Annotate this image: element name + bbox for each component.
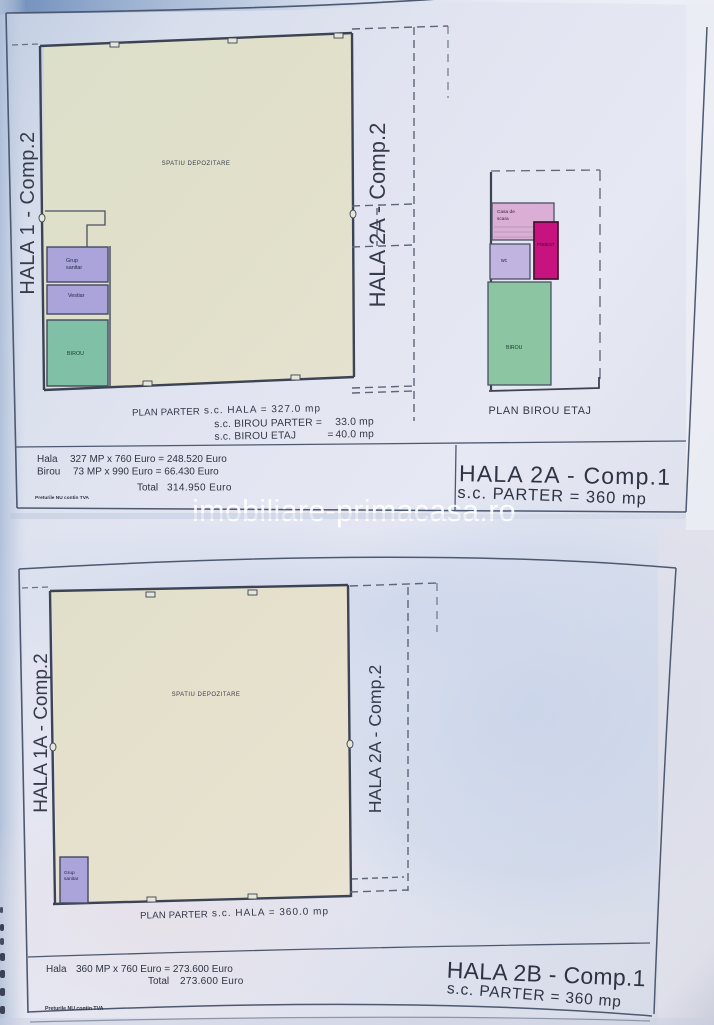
- svg-text:PLAN BIROU ETAJ: PLAN BIROU ETAJ: [489, 405, 592, 417]
- svg-text:Birou: Birou: [37, 467, 60, 478]
- svg-text:scara: scara: [497, 216, 509, 222]
- svg-text:40.0 mp: 40.0 mp: [335, 429, 374, 441]
- svg-text:Casa de: Casa de: [497, 209, 515, 215]
- svg-text:s.c. HALA = 360.0 mp: s.c. HALA = 360.0 mp: [212, 906, 329, 919]
- svg-text:=: =: [327, 430, 333, 441]
- svg-text:Grup: Grup: [64, 870, 75, 876]
- svg-text:73 MP x 990 Euro = 66.430 Eu: 73 MP x 990 Euro = 66.430 Euro: [73, 467, 219, 478]
- svg-text:HALA 2A - Comp.2: HALA 2A - Comp.2: [365, 665, 385, 813]
- svg-text:PODEST: PODEST: [537, 242, 555, 247]
- svg-text:360 MP x 760 Euro = 273.600 Eu: 360 MP x 760 Euro = 273.600 Euro: [76, 964, 233, 975]
- svg-text:314.950 Euro: 314.950 Euro: [167, 483, 232, 494]
- svg-text:HALA 1A - Comp.2: HALA 1A - Comp.2: [31, 653, 52, 812]
- svg-text:PLAN PARTER: PLAN PARTER: [140, 909, 208, 921]
- svg-text:SPATIU DEPOZITARE: SPATIU DEPOZITARE: [162, 161, 231, 167]
- svg-text:327 MP x 760 Euro = 248.520 Eu: 327 MP x 760 Euro = 248.520 Euro: [70, 454, 227, 465]
- svg-text:imobiliare-primacasa.ro: imobiliare-primacasa.ro: [192, 494, 516, 528]
- svg-text:Preturile NU contin TVA: Preturile NU contin TVA: [45, 1006, 104, 1012]
- svg-text:Hala: Hala: [46, 964, 67, 975]
- svg-text:sanitar: sanitar: [64, 876, 79, 882]
- svg-text:s.c. BIROU PARTER =: s.c. BIROU PARTER =: [214, 417, 322, 430]
- svg-text:273.600 Euro: 273.600 Euro: [180, 976, 244, 987]
- svg-text:BIROU: BIROU: [67, 351, 84, 357]
- svg-text:s.c. BIROU ETAJ: s.c. BIROU ETAJ: [214, 430, 296, 442]
- svg-text:HALA 2A - Comp.2: HALA 2A - Comp.2: [365, 123, 390, 308]
- svg-text:wc: wc: [501, 258, 508, 264]
- svg-text:sanitar: sanitar: [66, 265, 82, 271]
- svg-text:s.c. HALA = 327.0 mp: s.c. HALA = 327.0 mp: [204, 403, 321, 416]
- svg-text:Total: Total: [148, 976, 169, 987]
- svg-text:PLAN PARTER: PLAN PARTER: [132, 407, 200, 419]
- svg-text:33.0 mp: 33.0 mp: [335, 416, 374, 428]
- svg-text:Vestiar: Vestiar: [68, 293, 85, 299]
- svg-text:Grup: Grup: [66, 258, 78, 264]
- svg-text:Hala: Hala: [37, 454, 58, 465]
- svg-text:HALA 1 - Comp.2: HALA 1 - Comp.2: [17, 131, 39, 294]
- svg-text:SPATIU DEPOZITARE: SPATIU DEPOZITARE: [172, 692, 241, 698]
- svg-text:Total: Total: [137, 483, 158, 494]
- svg-text:BIROU: BIROU: [506, 345, 523, 351]
- svg-text:Preturile NU contin TVA: Preturile NU contin TVA: [35, 495, 90, 501]
